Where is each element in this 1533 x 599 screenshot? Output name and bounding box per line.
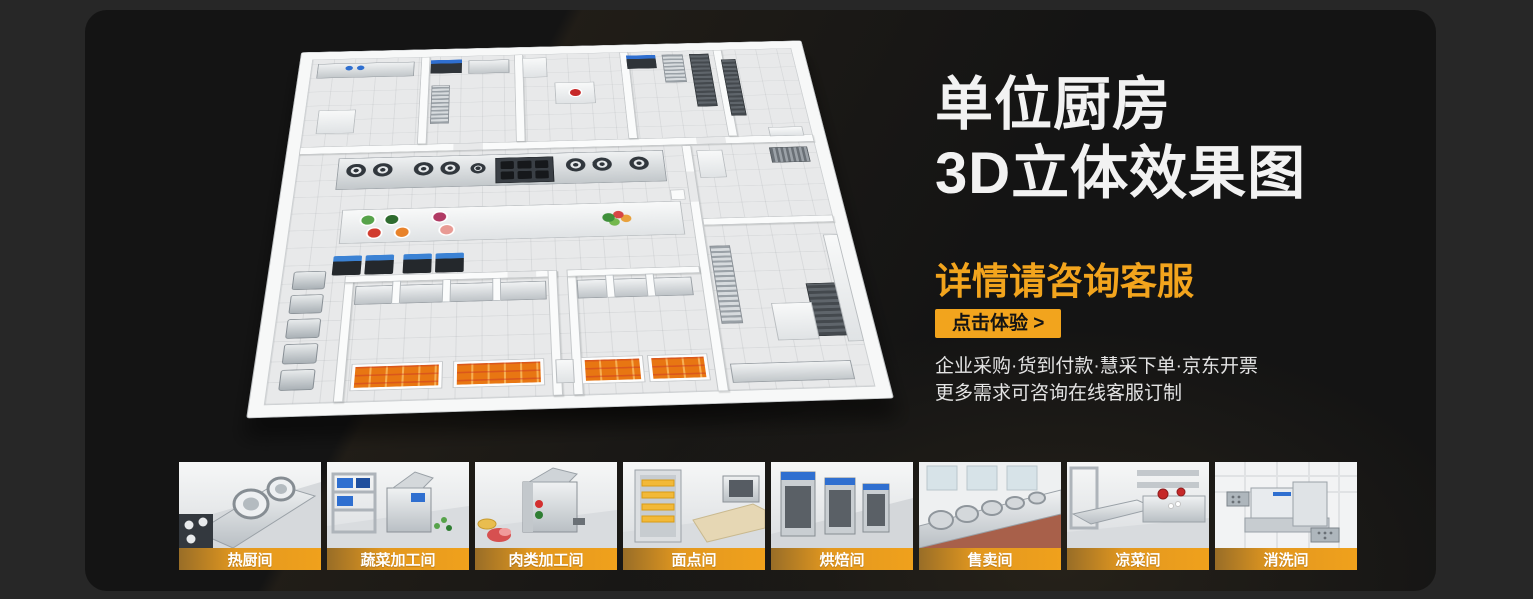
steamer-unit [364, 255, 394, 275]
fridge [696, 150, 727, 178]
gallery-label: 热厨间 [179, 548, 321, 570]
gallery-label: 烘焙间 [771, 548, 913, 570]
gallery-item-vegetable-processing[interactable]: 蔬菜加工间 [327, 462, 469, 570]
hero-title-line2: 3D立体效果图 [935, 139, 1435, 208]
cta-button[interactable]: 点击体验 > [935, 309, 1061, 338]
prep-table [316, 62, 414, 79]
door-cabinet [555, 359, 575, 383]
hot-kitchen-photo [179, 462, 321, 548]
hero-subtitle: 详情请咨询客服 [935, 251, 1194, 305]
gallery-item-cold-dish-room[interactable]: 凉菜间 [1067, 462, 1209, 570]
gallery-item-baking-room[interactable]: 烘焙间 [771, 462, 913, 570]
soup-kettle [288, 294, 324, 314]
shelf-rack [430, 85, 450, 124]
door-gap [453, 143, 483, 150]
floorplan-3d [247, 41, 892, 418]
dishwashing-room-photo [1215, 462, 1357, 548]
gallery-label: 售卖间 [919, 548, 1061, 570]
counter-divider [492, 278, 501, 301]
gallery-label: 蔬菜加工间 [327, 548, 469, 570]
gallery-label: 消洗间 [1215, 548, 1357, 570]
vegetable-room-photo [327, 462, 469, 548]
steam-cabinet [430, 60, 462, 74]
food-display-trays [454, 359, 544, 387]
island-table [771, 302, 820, 340]
gallery-item-meat-processing[interactable]: 肉类加工间 [475, 462, 617, 570]
banner-card: 单位厨房 3D立体效果图 详情请咨询客服 点击体验 > 企业采购·货到付款·慧采… [85, 10, 1436, 591]
hero-title-line1: 单位厨房 [935, 70, 1435, 139]
hero-info: 企业采购·货到付款·慧采下单·京东开票 更多需求可咨询在线客服订制 [935, 353, 1258, 407]
info-line-1: 企业采购·货到付款·慧采下单·京东开票 [935, 353, 1258, 380]
soup-kettle [292, 271, 327, 290]
cold-dish-room-photo [1067, 462, 1209, 548]
gallery-label: 面点间 [623, 548, 765, 570]
serving-counter [577, 277, 694, 299]
room-gallery: 热厨间 蔬菜加工间 [179, 462, 1357, 570]
counter-divider [442, 279, 451, 302]
gallery-item-hot-kitchen[interactable]: 热厨间 [179, 462, 321, 570]
soup-kettle [278, 369, 316, 391]
gallery-item-pastry-room[interactable]: 面点间 [623, 462, 765, 570]
food-display-trays [350, 362, 442, 390]
gallery-label: 凉菜间 [1067, 548, 1209, 570]
pillar [670, 189, 686, 199]
steam-cabinet [626, 55, 657, 69]
vent-grate [769, 146, 811, 162]
steamer-unit [435, 253, 464, 273]
gallery-item-selling-room[interactable]: 售卖间 [919, 462, 1061, 570]
counter [468, 59, 509, 73]
door-gap [508, 271, 537, 277]
vegetable-pile [600, 210, 634, 226]
soup-kettle [285, 318, 321, 339]
food-display-trays [582, 356, 645, 383]
soup-kettle [282, 343, 319, 364]
gallery-label: 肉类加工间 [475, 548, 617, 570]
info-line-2: 更多需求可咨询在线客服订制 [935, 380, 1258, 407]
selling-room-photo [919, 462, 1061, 548]
steamer-unit [403, 253, 432, 273]
south-counter [730, 360, 855, 383]
counter-divider [391, 281, 401, 304]
six-burner-range [495, 156, 554, 183]
pastry-room-photo [623, 462, 765, 548]
door-gap [696, 137, 726, 144]
food-display-trays [648, 354, 710, 381]
bench [768, 126, 804, 136]
tray-rack [662, 54, 687, 82]
work-table [316, 110, 356, 134]
meat-room-photo [475, 462, 617, 548]
gallery-item-dishwashing-room[interactable]: 消洗间 [1215, 462, 1357, 570]
steamer-unit [332, 255, 362, 275]
tall-cabinet [522, 58, 547, 78]
baking-room-photo [771, 462, 913, 548]
hero-copy: 单位厨房 3D立体效果图 详情请咨询客服 点击体验 > 企业采购·货到付款·慧采… [935, 70, 1435, 208]
